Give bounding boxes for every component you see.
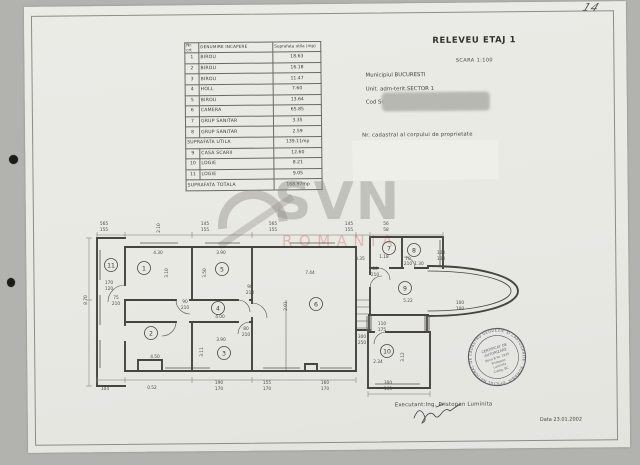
- cell-nr: 3: [185, 74, 199, 85]
- dimension-label: 7.44: [305, 270, 315, 276]
- cell-nr: 6: [185, 106, 199, 117]
- dimension-label: 300: [384, 380, 392, 386]
- cell-room-name: BIROU: [199, 95, 273, 106]
- cell-area: 13.64: [273, 94, 321, 105]
- walls-layer: [97, 237, 518, 388]
- dimension-label: 155: [269, 227, 277, 233]
- dimension-label: 3.11: [199, 347, 205, 357]
- cell-room-name: LOGIE: [200, 169, 274, 180]
- cell-room-name: CASA SCARII: [200, 148, 274, 159]
- dimension-label: 155: [263, 380, 271, 386]
- dimension-label: 170: [215, 386, 223, 392]
- dimension-label: 2.10: [156, 223, 162, 233]
- dimension-label: 56: [383, 221, 389, 227]
- dimension-label: 3.12: [400, 352, 406, 362]
- dimension-label: 100: [437, 250, 445, 256]
- dimension-label: 170: [263, 386, 271, 392]
- cell-area: 11.47: [273, 73, 321, 84]
- cell-room-name: BIROU: [199, 63, 273, 74]
- dimension-label: 210: [242, 332, 250, 338]
- room-number: 9: [403, 285, 407, 292]
- cell-room-name: CAMERA: [199, 105, 273, 116]
- dimension-label: 90: [247, 284, 253, 290]
- dimension-label: 2.01: [283, 301, 289, 311]
- room-number: 2: [149, 330, 153, 337]
- room-number: 6: [314, 301, 318, 308]
- dimension-label: 4.50: [150, 354, 160, 360]
- dimension-label: 8.70: [83, 295, 89, 305]
- room-number: 4: [216, 305, 220, 312]
- col-header-nr: Nr. crt: [185, 43, 199, 53]
- dimension-label: 100: [456, 300, 464, 306]
- cell-area: 2.59: [274, 126, 322, 137]
- dimension-label: 163: [384, 386, 392, 392]
- dimension-label: 210: [371, 272, 379, 278]
- dimension-label: 155: [345, 227, 353, 233]
- dimension-label: 0.52: [147, 385, 157, 391]
- punch-hole-top: [9, 155, 18, 164]
- cell-area: 7.60: [273, 84, 321, 95]
- dimension-label: 100: [437, 256, 445, 262]
- room-number: 5: [220, 266, 224, 273]
- dimension-label: 565: [100, 221, 108, 227]
- cell-nr: 1: [185, 53, 199, 64]
- dimension-label: 3.90: [216, 250, 226, 256]
- dimension-label: 110: [378, 321, 386, 327]
- date-line: Data 23.01.2002: [540, 417, 582, 423]
- dimension-label: 90: [182, 299, 188, 305]
- location-line-municipality: Municipiul BUCURESTI: [365, 69, 433, 83]
- area-table: Nr. crt Denumire incapere Suprafata util…: [184, 41, 322, 191]
- room-number: 10: [383, 348, 391, 355]
- dimension-label: 75: [113, 295, 119, 301]
- floor-plan-svg: 1234567891011 56515514515556515514515556…: [80, 213, 535, 405]
- dimension-label: 210: [246, 290, 254, 296]
- cell-nr: 9: [186, 148, 200, 159]
- certification-stamp: OFICIUL NATIONAL DE CADASTRU GEODEZIE SI…: [461, 321, 533, 393]
- dimension-label: 250: [358, 340, 366, 346]
- col-header-name: Denumire incapere: [199, 42, 273, 53]
- dimension-label: 58: [383, 227, 389, 233]
- cell-area: 139.11mp: [274, 136, 322, 147]
- dimension-label: 170: [105, 280, 113, 286]
- dimension-label: 3.10: [164, 268, 170, 278]
- dimension-label: 104: [101, 386, 109, 392]
- punch-hole-bottom: [7, 278, 15, 287]
- dimension-label: 145: [345, 221, 353, 227]
- scanned-document: Nr. crt Denumire incapere Suprafata util…: [0, 0, 640, 465]
- cell-room-name: HOLL: [199, 84, 273, 95]
- cell-nr: 7: [185, 116, 199, 127]
- total-label: SUPRAFATA TOTALA: [186, 179, 274, 190]
- windows-layer: [100, 240, 440, 384]
- dimension-label: 190: [215, 380, 223, 386]
- cell-area: 12.60: [274, 147, 322, 158]
- cell-nr: 2: [185, 64, 199, 75]
- dimension-label: 1.30: [414, 261, 424, 267]
- dimension-label: 175: [378, 327, 386, 333]
- cell-nr: 11: [186, 169, 200, 180]
- dimension-label: 145: [201, 221, 209, 227]
- dimension-label: 210: [181, 305, 189, 311]
- dimension-label: 80: [243, 326, 249, 332]
- dimension-label: 210: [404, 261, 412, 267]
- stamp-inner-text: CERTIFICAT DEAUTORIZARESeria B Nr. 1935P…: [481, 342, 515, 376]
- blank-whiteout-box: [352, 139, 498, 180]
- cell-room-name: BIROU: [199, 52, 273, 63]
- table-total-row: SUPRAFATA TOTALA168.97mp: [186, 179, 322, 191]
- room-number: 8: [412, 247, 416, 254]
- dimension-label: 155: [201, 227, 209, 233]
- room-number: 3: [222, 350, 226, 357]
- dimension-label: 100: [456, 306, 464, 312]
- dimension-label: 4.30: [153, 250, 163, 256]
- cell-area: 9.05: [274, 168, 322, 179]
- cell-area: 8.21: [274, 158, 322, 169]
- dimension-label: 565: [269, 221, 277, 227]
- dimension-label: 80: [372, 266, 378, 272]
- cell-room-name: GRUP SANITAR: [199, 116, 273, 127]
- cell-nr: 4: [185, 85, 199, 96]
- cell-room-name: BIROU: [199, 73, 273, 84]
- cell-room-name: GRUP SANITAR: [200, 126, 274, 137]
- cell-nr: 8: [186, 127, 200, 138]
- col-header-area: Suprafata utila (mp): [273, 42, 321, 53]
- dimension-label: 155: [100, 227, 108, 233]
- cell-area: 168.97mp: [274, 179, 322, 190]
- room-number: 7: [387, 245, 391, 252]
- room-number: 1: [142, 265, 146, 272]
- dimension-label: 3.90: [216, 337, 226, 343]
- dimension-label: 300: [358, 334, 366, 340]
- dimension-label: 3.50: [202, 268, 208, 278]
- dimension-label: 210: [112, 301, 120, 307]
- dimension-label: 2.34: [373, 359, 383, 365]
- dimension-label: 4.00: [215, 314, 225, 320]
- room-number: 11: [107, 262, 115, 269]
- cell-area: 3.35: [273, 115, 321, 126]
- dimension-label: 5.22: [403, 298, 413, 304]
- cell-area: 65.85: [273, 105, 321, 116]
- dimension-label: 120: [105, 286, 113, 292]
- cell-area: 18.63: [273, 52, 321, 63]
- dimension-label: 1.18: [379, 254, 389, 260]
- dimension-label: 160: [321, 380, 329, 386]
- dimension-label: 8.35: [355, 256, 365, 262]
- dimension-label: 170: [321, 386, 329, 392]
- chimney-hatch: [366, 316, 430, 331]
- cell-area: 16.18: [273, 62, 321, 73]
- cell-nr: 10: [186, 159, 200, 170]
- cell-room-name: LOGIE: [200, 158, 274, 169]
- cell-nr: 5: [185, 95, 199, 106]
- redaction-smudge: [382, 91, 490, 111]
- cadastral-number-label: Nr. cadastral al corpului de proprietate: [362, 132, 473, 139]
